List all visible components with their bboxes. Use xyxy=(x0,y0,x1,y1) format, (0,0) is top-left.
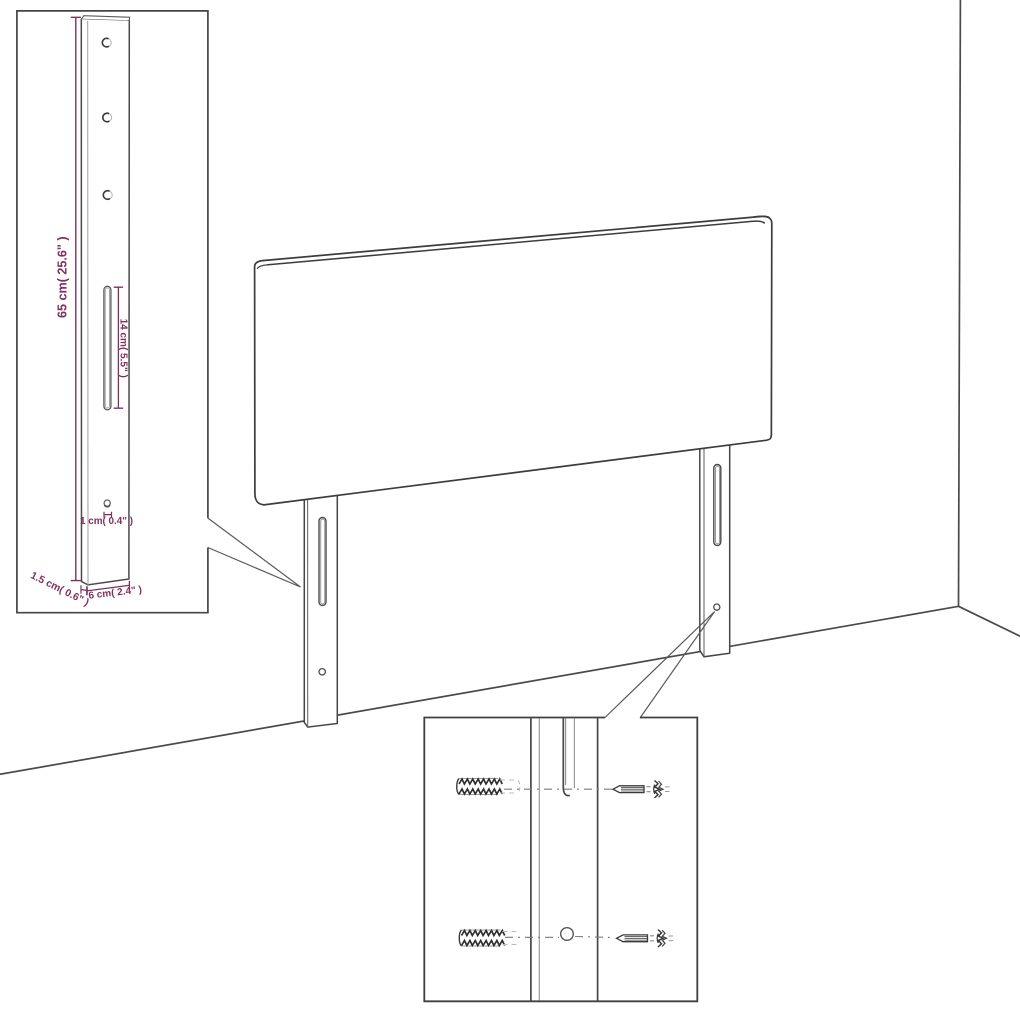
svg-text:14 cm( 5.5" ): 14 cm( 5.5" ) xyxy=(118,319,129,378)
svg-text:65 cm( 25.6" ): 65 cm( 25.6" ) xyxy=(56,236,70,318)
svg-text:1 cm( 0.4" ): 1 cm( 0.4" ) xyxy=(80,516,133,527)
